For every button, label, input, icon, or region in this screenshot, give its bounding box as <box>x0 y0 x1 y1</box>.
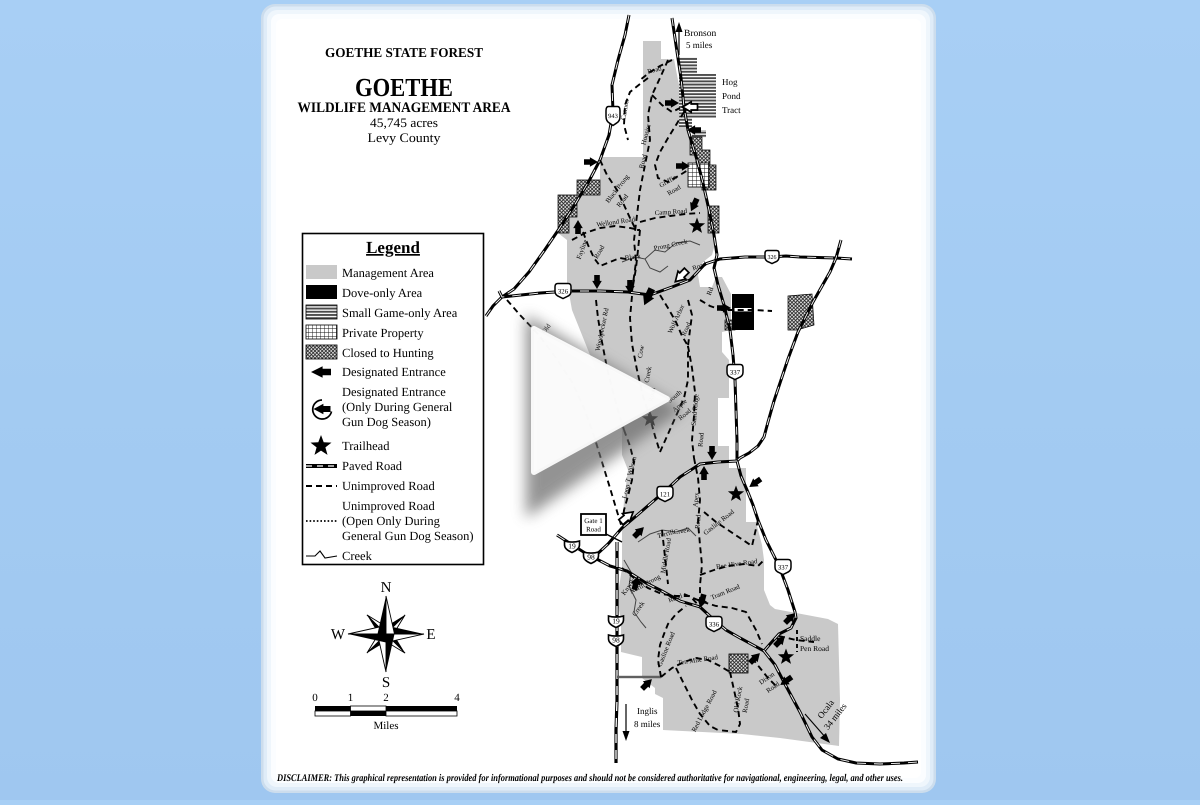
svg-text:45,745 acres: 45,745 acres <box>370 115 438 130</box>
svg-text:Pen Road: Pen Road <box>800 644 829 653</box>
svg-text:Hog: Hog <box>722 77 738 87</box>
svg-text:GOETHE: GOETHE <box>355 73 453 102</box>
svg-text:Gun Dog Season): Gun Dog Season) <box>342 415 431 429</box>
svg-text:Road: Road <box>697 432 705 448</box>
svg-text:5 miles: 5 miles <box>686 40 713 50</box>
svg-text:(Only During General: (Only During General <box>342 400 453 414</box>
svg-text:Unimproved Road: Unimproved Road <box>342 499 435 513</box>
svg-text:Private Property: Private Property <box>342 326 424 340</box>
svg-text:W: W <box>331 627 346 643</box>
svg-text:Small Game-only Area: Small Game-only Area <box>342 306 458 320</box>
svg-text:E: E <box>426 627 435 643</box>
svg-text:WILDLIFE MANAGEMENT AREA: WILDLIFE MANAGEMENT AREA <box>298 100 511 116</box>
svg-text:Closed to Hunting: Closed to Hunting <box>342 346 434 360</box>
svg-text:Management Area: Management Area <box>342 266 434 280</box>
svg-text:Apex: Apex <box>692 492 700 508</box>
svg-text:DISCLAIMER: This graphical rep: DISCLAIMER: This graphical representatio… <box>276 773 903 784</box>
svg-text:19: 19 <box>612 617 620 626</box>
svg-text:Designated Entrance: Designated Entrance <box>342 365 446 379</box>
svg-text:Trailhead: Trailhead <box>342 439 390 453</box>
svg-text:Paved Road: Paved Road <box>342 459 403 473</box>
svg-text:S: S <box>382 675 390 691</box>
svg-text:337: 337 <box>778 564 789 571</box>
svg-text:Bronson: Bronson <box>684 29 716 39</box>
svg-text:GOETHE STATE FOREST: GOETHE STATE FOREST <box>325 45 483 60</box>
svg-text:8 miles: 8 miles <box>634 719 661 729</box>
svg-text:Unimproved Road: Unimproved Road <box>342 479 435 493</box>
svg-text:121: 121 <box>660 491 670 498</box>
svg-text:Dove-only Area: Dove-only Area <box>342 286 423 300</box>
svg-text:General Gun Dog Season): General Gun Dog Season) <box>342 529 474 543</box>
svg-text:Designated Entrance: Designated Entrance <box>342 385 446 399</box>
svg-text:Levy County: Levy County <box>368 130 442 145</box>
svg-text:Legend: Legend <box>366 238 420 257</box>
svg-text:Creek: Creek <box>342 549 373 563</box>
svg-text:Miles: Miles <box>373 720 398 732</box>
svg-text:(Open Only During: (Open Only During <box>342 514 441 528</box>
svg-text:19: 19 <box>568 542 576 551</box>
svg-text:0: 0 <box>312 692 318 704</box>
svg-text:Road: Road <box>694 514 702 530</box>
svg-text:Gate 1: Gate 1 <box>584 517 603 525</box>
svg-text:336: 336 <box>709 621 720 628</box>
svg-text:1: 1 <box>348 692 354 704</box>
svg-text:943: 943 <box>608 113 618 120</box>
svg-text:326: 326 <box>768 255 777 261</box>
svg-text:Tract: Tract <box>722 105 741 115</box>
svg-text:Saddle: Saddle <box>800 634 821 643</box>
svg-text:98: 98 <box>612 636 620 645</box>
svg-text:Inglis: Inglis <box>637 706 658 716</box>
svg-text:98: 98 <box>587 553 595 562</box>
svg-text:2: 2 <box>383 692 389 704</box>
svg-text:Pond: Pond <box>722 91 741 101</box>
svg-text:Road: Road <box>586 526 601 534</box>
svg-text:4: 4 <box>454 692 460 704</box>
svg-text:N: N <box>381 580 392 596</box>
svg-text:326: 326 <box>558 288 569 295</box>
svg-text:337: 337 <box>730 369 741 376</box>
